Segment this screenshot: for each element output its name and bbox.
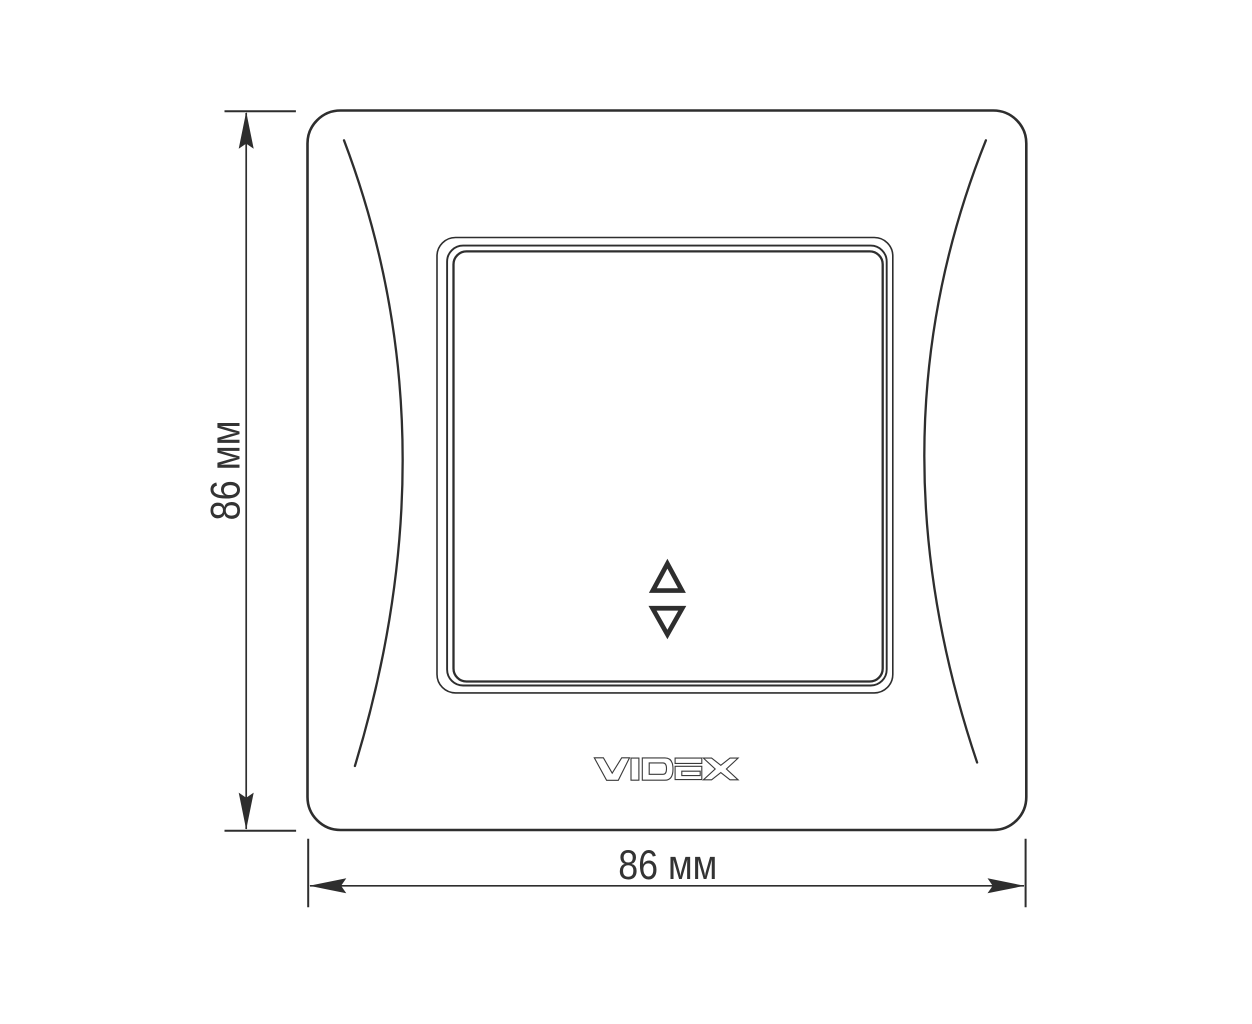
svg-text:86 мм: 86 мм — [618, 841, 717, 888]
svg-text:86 мм: 86 мм — [201, 421, 248, 521]
